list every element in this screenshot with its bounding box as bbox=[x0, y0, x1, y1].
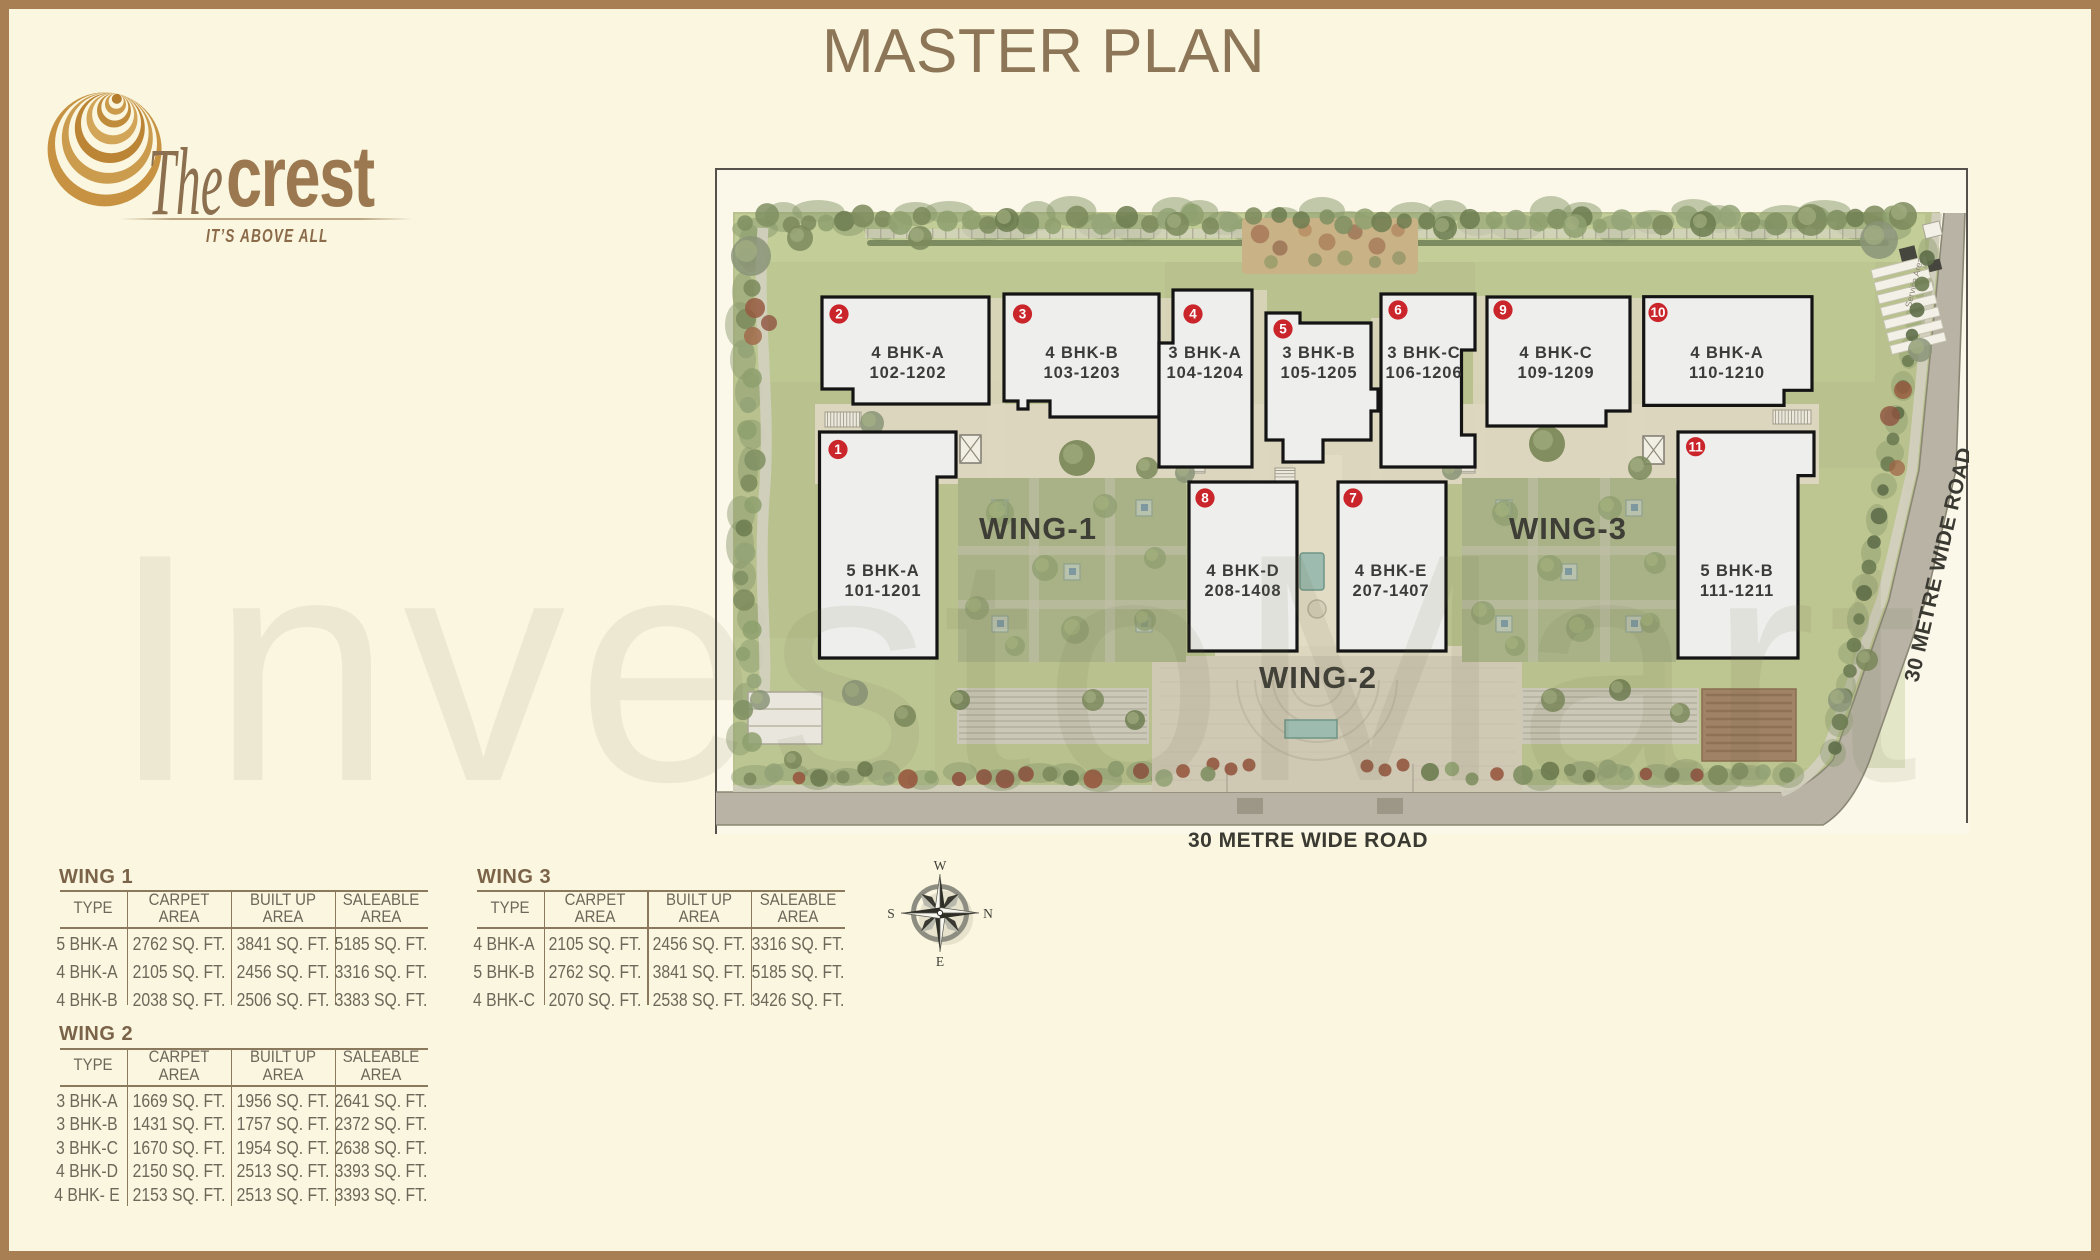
svg-text:4 BHK-D: 4 BHK-D bbox=[1206, 562, 1279, 580]
svg-text:S: S bbox=[887, 906, 895, 921]
svg-text:5 BHK-B: 5 BHK-B bbox=[1700, 562, 1773, 580]
svg-text:11: 11 bbox=[1688, 439, 1703, 454]
svg-text:101-1201: 101-1201 bbox=[845, 582, 922, 600]
svg-text:110-1210: 110-1210 bbox=[1689, 364, 1765, 382]
svg-text:109-1209: 109-1209 bbox=[1518, 364, 1595, 382]
svg-text:3 BHK-C: 3 BHK-C bbox=[1387, 344, 1460, 362]
svg-text:4 BHK-E: 4 BHK-E bbox=[1355, 562, 1427, 580]
svg-text:4 BHK-B: 4 BHK-B bbox=[1045, 344, 1118, 362]
svg-text:9: 9 bbox=[1499, 303, 1507, 318]
svg-text:2: 2 bbox=[835, 307, 843, 322]
svg-text:6: 6 bbox=[1394, 303, 1402, 318]
svg-text:207-1407: 207-1407 bbox=[1353, 582, 1430, 600]
svg-text:3: 3 bbox=[1019, 307, 1027, 322]
svg-text:WING-1: WING-1 bbox=[979, 511, 1097, 546]
svg-text:1: 1 bbox=[834, 442, 842, 457]
svg-text:208-1408: 208-1408 bbox=[1205, 582, 1282, 600]
svg-text:4: 4 bbox=[1189, 307, 1197, 322]
svg-text:30 METRE WIDE ROAD: 30 METRE WIDE ROAD bbox=[1188, 829, 1428, 852]
svg-text:5 BHK-A: 5 BHK-A bbox=[846, 562, 919, 580]
svg-text:10: 10 bbox=[1650, 305, 1665, 320]
svg-text:WING-2: WING-2 bbox=[1259, 660, 1377, 695]
svg-text:105-1205: 105-1205 bbox=[1281, 364, 1358, 382]
svg-text:8: 8 bbox=[1201, 491, 1209, 506]
svg-text:4 BHK-A: 4 BHK-A bbox=[1690, 344, 1763, 362]
svg-text:4 BHK-C: 4 BHK-C bbox=[1519, 344, 1592, 362]
svg-text:111-1211: 111-1211 bbox=[1700, 582, 1774, 600]
svg-text:N: N bbox=[983, 906, 993, 921]
svg-text:WING-3: WING-3 bbox=[1509, 511, 1627, 546]
svg-text:3 BHK-A: 3 BHK-A bbox=[1168, 344, 1241, 362]
svg-text:3 BHK-B: 3 BHK-B bbox=[1282, 344, 1355, 362]
svg-text:7: 7 bbox=[1349, 491, 1357, 506]
svg-text:104-1204: 104-1204 bbox=[1167, 364, 1244, 382]
svg-text:102-1202: 102-1202 bbox=[870, 364, 947, 382]
svg-text:5: 5 bbox=[1279, 322, 1287, 337]
svg-text:106-1206: 106-1206 bbox=[1386, 364, 1463, 382]
svg-text:4 BHK-A: 4 BHK-A bbox=[871, 344, 944, 362]
svg-text:E: E bbox=[936, 954, 944, 969]
svg-text:crest: crest bbox=[226, 129, 375, 225]
svg-text:103-1203: 103-1203 bbox=[1044, 364, 1121, 382]
